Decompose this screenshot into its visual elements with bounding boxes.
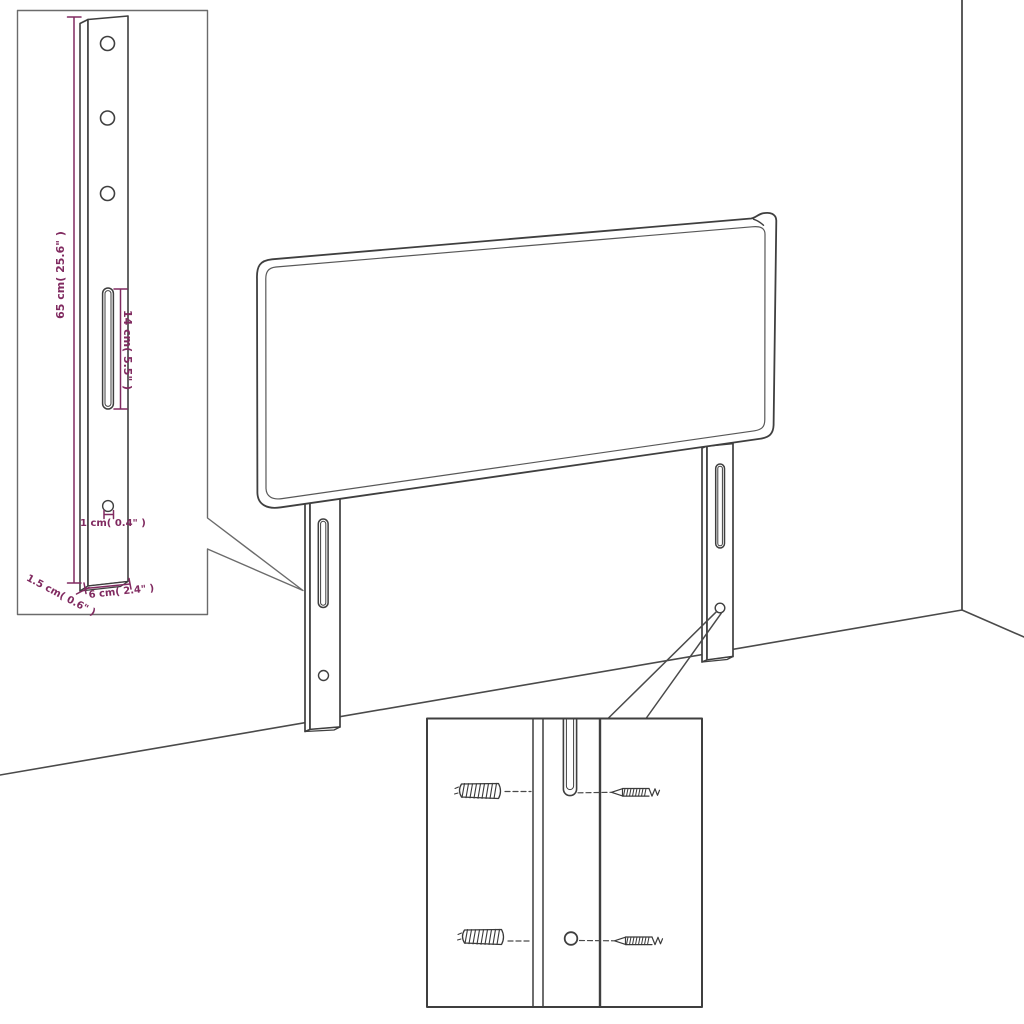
wall-anchor-icon-top — [455, 783, 501, 798]
dimension-label-hole-diameter: 1 cm( 0.4" ) — [80, 517, 146, 531]
dimension-label-slot-length: 14 cm( 5.5" ) — [120, 310, 134, 388]
headboard-front-face — [257, 213, 776, 508]
headboard-dimension-diagram: 65 cm( 25.6" ) 14 cm( 5.5" ) 1 cm( 0.4" … — [0, 0, 1024, 1024]
headboard-panel — [257, 213, 776, 508]
left-leg-front-face — [310, 498, 340, 730]
left-leg — [305, 498, 340, 732]
callout-line-a — [608, 612, 716, 719]
inset-leg-side-face — [80, 20, 88, 592]
right-leg — [702, 444, 733, 663]
dimension-label-leg-height: 65 cm( 25.6" ) — [54, 231, 68, 319]
floor-line-right — [962, 610, 1024, 637]
screws-detail-box — [427, 710, 702, 1007]
dashed-guide-top-right — [578, 792, 611, 793]
wall-anchor-icon-bottom — [458, 929, 504, 944]
diagram-line-art — [0, 0, 1024, 1024]
detail-box-frame — [427, 719, 702, 1008]
callout-line-b — [646, 613, 721, 718]
